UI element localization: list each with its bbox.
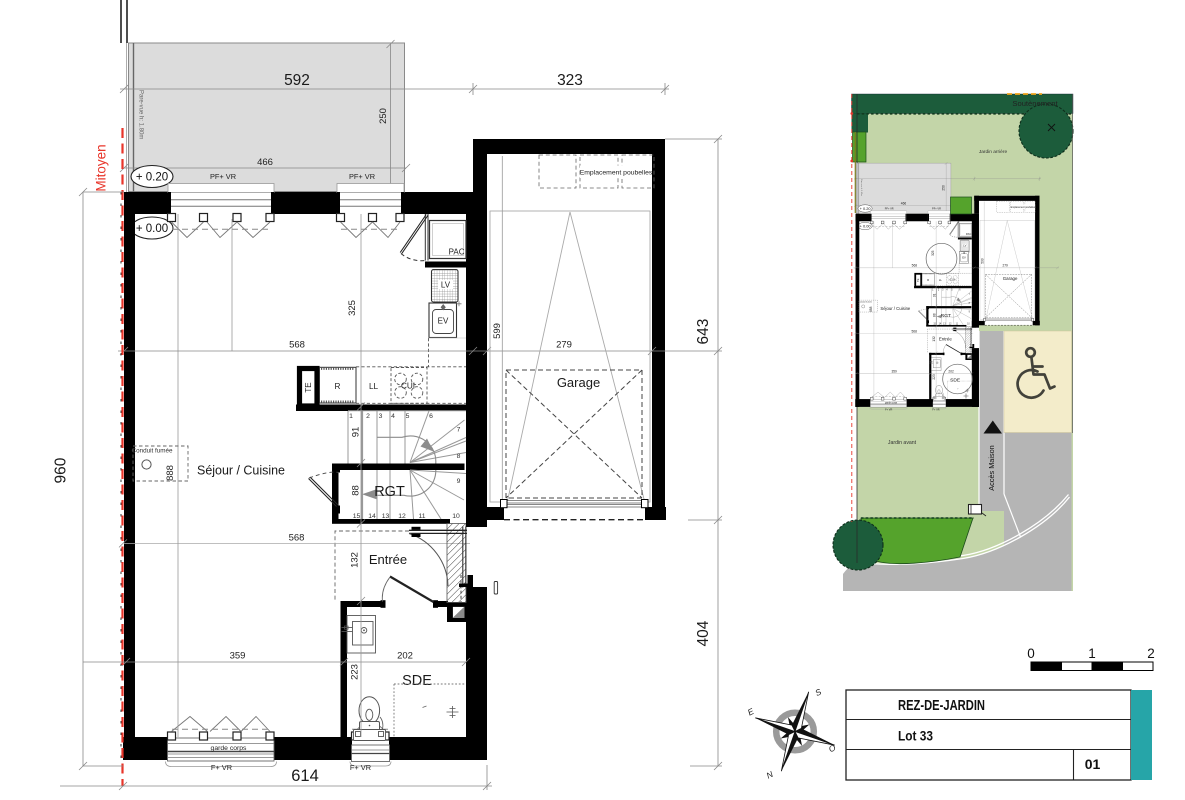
svg-text:+ 0.20: + 0.20 [136,172,168,184]
svg-text:Conduit fumée: Conduit fumée [132,448,173,455]
svg-text:323: 323 [557,72,583,89]
svg-text:12: 12 [398,513,406,520]
svg-text:Lot 33: Lot 33 [898,729,933,744]
svg-text:F+ VR: F+ VR [350,763,371,772]
svg-text:9: 9 [457,478,461,485]
svg-text:PAC: PAC [449,248,465,257]
svg-text:960: 960 [53,457,70,483]
svg-text:2: 2 [1147,646,1155,661]
svg-text:7: 7 [457,427,461,434]
svg-text:14: 14 [368,513,376,520]
svg-text:404: 404 [695,620,712,646]
svg-text:88: 88 [351,485,362,496]
svg-text:REZ-DE-JARDIN: REZ-DE-JARDIN [898,698,985,714]
svg-text:5: 5 [406,413,410,420]
svg-text:1: 1 [349,413,353,420]
svg-text:3: 3 [379,413,383,420]
svg-text:F+ VR: F+ VR [211,763,232,772]
svg-text:+ 0.00: + 0.00 [136,223,168,235]
svg-text:91: 91 [351,427,362,438]
svg-text:599: 599 [492,323,503,339]
svg-text:466: 466 [257,157,273,168]
svg-text:Garage: Garage [557,375,600,390]
svg-text:643: 643 [695,319,712,345]
svg-text:8: 8 [457,453,461,460]
svg-text:4: 4 [391,413,395,420]
svg-text:CUI: CUI [401,382,415,391]
svg-text:Accès Maison: Accès Maison [987,445,996,490]
svg-text:592: 592 [284,72,310,89]
svg-text:2: 2 [366,413,370,420]
svg-text:LV: LV [441,281,451,290]
svg-text:Jardin avant: Jardin avant [888,440,917,446]
svg-text:Jardin arrière: Jardin arrière [979,149,1008,155]
svg-text:Séjour / Cuisine: Séjour / Cuisine [197,463,285,478]
svg-text:10: 10 [452,513,460,520]
svg-text:223: 223 [350,664,361,680]
svg-text:EV: EV [438,317,449,326]
svg-text:1: 1 [1088,646,1096,661]
svg-text:279: 279 [556,340,572,351]
svg-text:SDE: SDE [402,673,432,689]
svg-text:359: 359 [230,651,246,662]
svg-text:RGT: RGT [374,484,405,500]
svg-text:0: 0 [1027,646,1035,661]
svg-text:325: 325 [347,300,358,316]
svg-text:568: 568 [289,340,305,351]
svg-text:garde corps: garde corps [211,745,247,752]
svg-text:Soutènement: Soutènement [1012,99,1058,108]
svg-text:PF+ VR: PF+ VR [349,172,375,181]
svg-text:888: 888 [165,465,176,481]
svg-text:11: 11 [418,513,425,520]
svg-text:568: 568 [289,533,305,544]
svg-text:614: 614 [291,767,319,785]
svg-text:250: 250 [378,108,389,124]
svg-text:TE: TE [304,382,313,392]
svg-text:Emplacement poubelles: Emplacement poubelles [580,170,653,177]
svg-text:13: 13 [382,513,390,520]
svg-text:PF+ VR: PF+ VR [210,172,236,181]
svg-text:Entrée: Entrée [369,552,407,567]
svg-text:Pare-vue h: 1.80m: Pare-vue h: 1.80m [138,90,144,139]
svg-text:Mitoyen: Mitoyen [94,144,109,191]
svg-text:LL: LL [369,382,379,391]
svg-text:6: 6 [429,413,433,420]
svg-text:15: 15 [353,513,361,520]
svg-text:01: 01 [1085,756,1101,772]
svg-text:R: R [335,382,341,391]
svg-text:202: 202 [397,651,413,662]
svg-text:132: 132 [350,552,361,568]
